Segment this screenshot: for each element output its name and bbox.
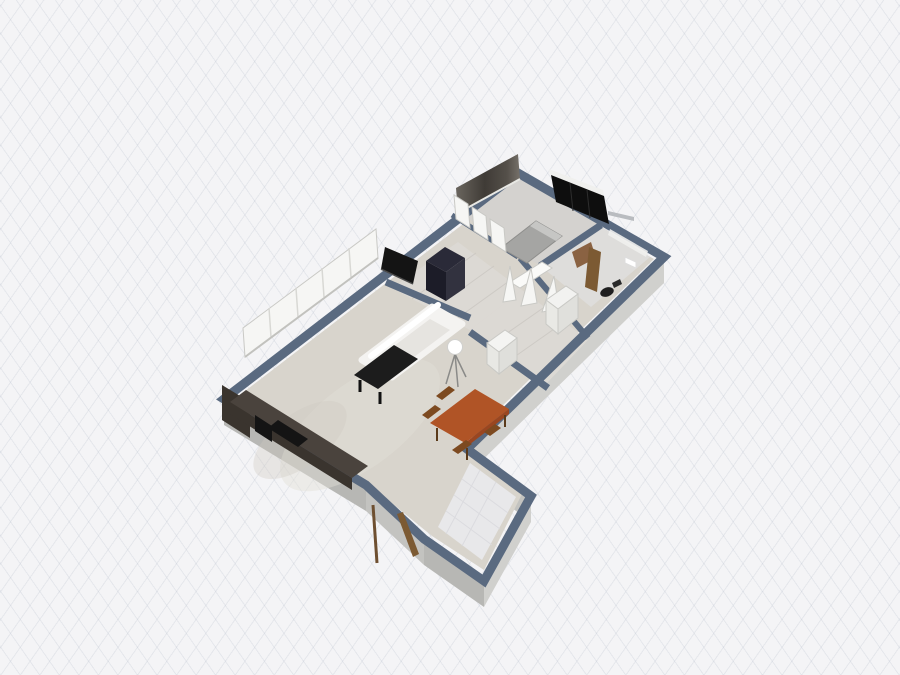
floorplan-render xyxy=(0,0,900,675)
floorplan-3d-canvas[interactable] xyxy=(0,0,900,675)
floors xyxy=(232,178,654,570)
panel-ledge xyxy=(608,211,634,221)
lamp-shade xyxy=(448,340,463,355)
